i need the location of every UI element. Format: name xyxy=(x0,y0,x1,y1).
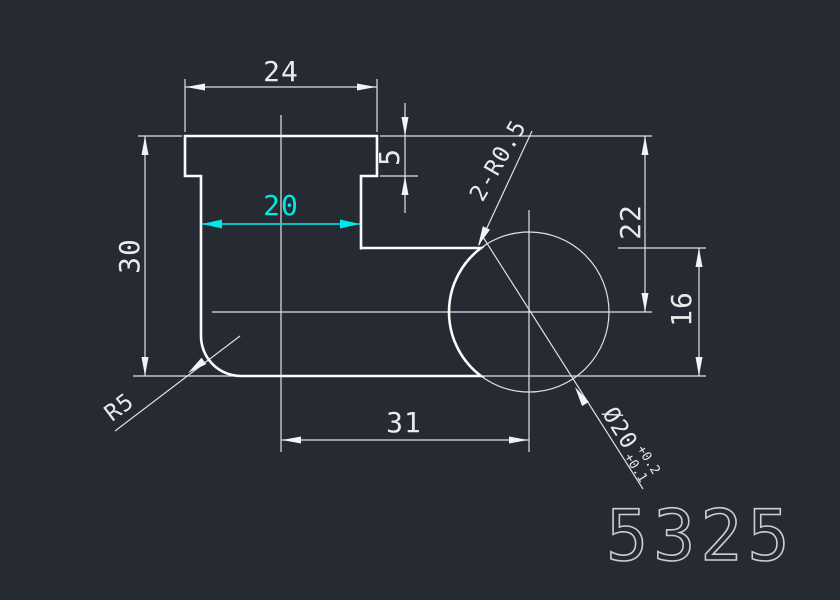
dim-top-width-label: 24 xyxy=(263,58,299,86)
dim-step-to-bottom-label: 16 xyxy=(668,291,696,327)
drawing-linework: 5325 xyxy=(0,0,840,600)
dimension-lines xyxy=(145,87,699,440)
part-number: 5325 xyxy=(606,495,795,577)
leader-lines xyxy=(115,131,643,489)
part-outline xyxy=(185,136,481,376)
dim-step-height-label: 5 xyxy=(376,148,404,166)
dim-center-offset-label: 31 xyxy=(386,409,422,437)
cad-drawing-viewport[interactable]: 5325 24 5 20 30 22 16 31 R5 2-R0.5 Ø20 +… xyxy=(0,0,840,600)
arrowheads xyxy=(142,84,703,444)
dim-center-from-top-label: 22 xyxy=(617,204,645,240)
dim-total-height-label: 30 xyxy=(116,238,144,274)
dim-body-width-label: 20 xyxy=(263,192,299,220)
